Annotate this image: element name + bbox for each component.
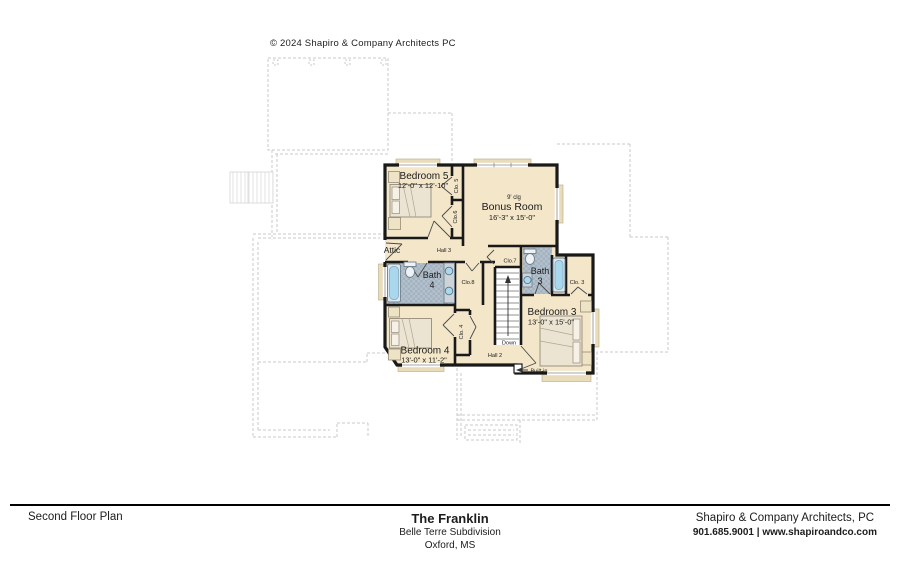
closet5-label: Clo. 5	[454, 179, 460, 194]
titleblock-rule	[10, 504, 890, 506]
down-label: Down	[502, 341, 516, 347]
bath3-toilet	[524, 249, 536, 254]
firm-contact: 901.685.9001 | www.shapiroandco.com	[693, 526, 877, 539]
bonus-dims: 16'-3" x 15'-0"	[489, 213, 535, 222]
hall2-label: Hall 2	[488, 353, 502, 359]
bedroom5-dims: 12'-0" x 12'-10"	[398, 181, 449, 190]
nightstand	[389, 349, 401, 360]
plan-name: The Franklin	[399, 511, 501, 527]
bath4-sink	[445, 267, 453, 275]
sheet-title: Second Floor Plan	[28, 511, 123, 523]
nightstand	[389, 307, 400, 317]
closet7-label: Clo.7	[503, 259, 516, 265]
porch-post	[381, 60, 386, 65]
drawing-sheet: © 2024 Shapiro & Company Architects PC	[0, 0, 900, 582]
bath4-name: Bath	[423, 270, 442, 280]
built-in-label: Built-in	[530, 369, 547, 375]
bedroom3-dims: 13'-0" x 15'-0"	[528, 318, 574, 327]
titleblock-right: Shapiro & Company Architects, PC 901.685…	[693, 511, 877, 539]
nightstand	[389, 218, 401, 230]
porch-post	[273, 60, 278, 65]
bath3-sink	[524, 276, 531, 283]
nightstand	[581, 301, 592, 312]
bath3-number: 3	[537, 276, 542, 286]
bedroom3-name: Bedroom 3	[528, 307, 577, 318]
closet3-label: Clo. 3	[570, 280, 585, 286]
closet6-label: Clo.6	[453, 210, 459, 223]
hall3-label: Hall 3	[437, 248, 451, 254]
bath3-name: Bath	[531, 266, 550, 276]
firm-name: Shapiro & Company Architects, PC	[693, 511, 877, 526]
porch-post	[309, 60, 314, 65]
porch-post	[345, 60, 350, 65]
attic-label: Attic	[384, 245, 401, 255]
bedroom4-dims: 13'-0" x 11'-2"	[401, 356, 447, 365]
bath4-sink	[445, 287, 453, 295]
closet4-label: Clo. 4	[459, 325, 465, 340]
closet8-label: Clo.8	[461, 280, 474, 286]
porch-steps-below	[465, 425, 517, 440]
floor-plan-svg: Bedroom 5 12'-0" x 12'-10" 9' clg Bonus …	[0, 0, 900, 582]
location: Oxford, MS	[399, 540, 501, 553]
bonus-name: Bonus Room	[482, 201, 543, 213]
bath4-number: 4	[429, 280, 434, 290]
subdivision: Belle Terre Subdivision	[399, 527, 501, 540]
bath4-toilet	[404, 262, 416, 267]
titleblock-center: The Franklin Belle Terre Subdivision Oxf…	[399, 511, 501, 552]
attic-stair-hatch	[230, 172, 273, 203]
